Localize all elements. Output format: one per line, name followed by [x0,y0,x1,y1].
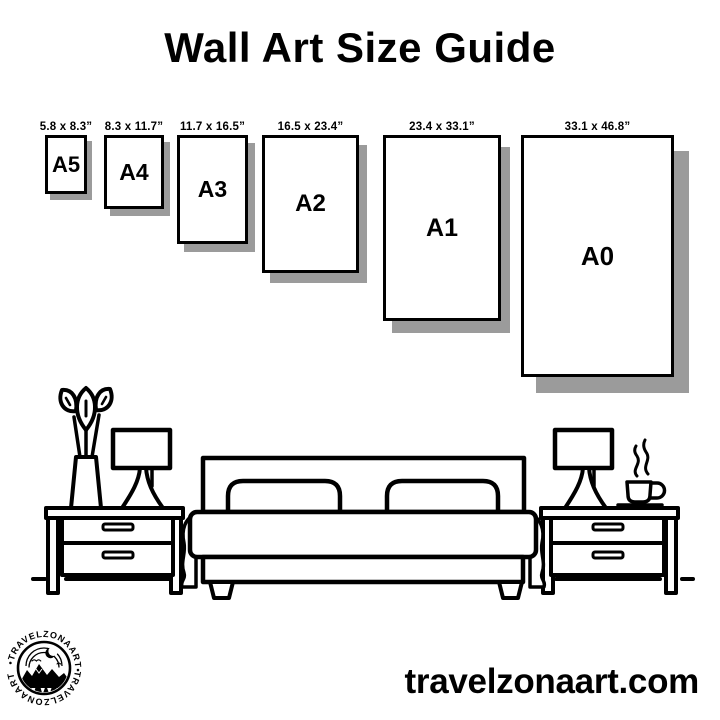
nightstand-left-icon [46,508,183,593]
table-lamp-right-icon [555,430,612,508]
table-lamp-left-icon [113,430,170,508]
size-name-a3: A3 [198,176,227,203]
size-sheet-a4: 8.3 x 11.7” A4 [104,135,164,209]
size-name-a2: A2 [295,190,326,218]
size-sheet-a1: 23.4 x 33.1” A1 [383,135,501,321]
potted-plant-icon [60,388,111,508]
steam-icon [635,440,648,476]
size-dimensions-a1: 23.4 x 33.1” [409,121,475,133]
bed-icon [182,458,545,598]
size-dimensions-a3: 11.7 x 16.5” [180,121,245,133]
nightstand-right-icon [541,508,678,593]
size-dimensions-a5: 5.8 x 8.3” [40,121,93,133]
size-sheet-a3: 11.7 x 16.5” A3 [177,135,248,244]
size-sheet-a5: 5.8 x 8.3” A5 [45,135,87,194]
size-name-a1: A1 [426,214,458,243]
size-sheet-a2: 16.5 x 23.4” A2 [262,135,359,273]
logo-badge: •TRAVELZONAART• TRAVELZONAART [0,622,90,712]
size-dimensions-a4: 8.3 x 11.7” [105,121,163,133]
size-name-a0: A0 [581,241,614,272]
size-sheet-a0: 33.1 x 46.8” A0 [521,135,674,377]
coffee-cup-icon [618,440,665,505]
size-name-a5: A5 [52,152,80,178]
size-dimensions-a0: 33.1 x 46.8” [565,121,631,133]
bedroom-illustration [0,380,720,610]
page-title: Wall Art Size Guide [0,24,720,72]
size-name-a4: A4 [119,159,148,186]
website-url: travelzonaart.com [405,662,699,702]
size-dimensions-a2: 16.5 x 23.4” [278,121,344,133]
